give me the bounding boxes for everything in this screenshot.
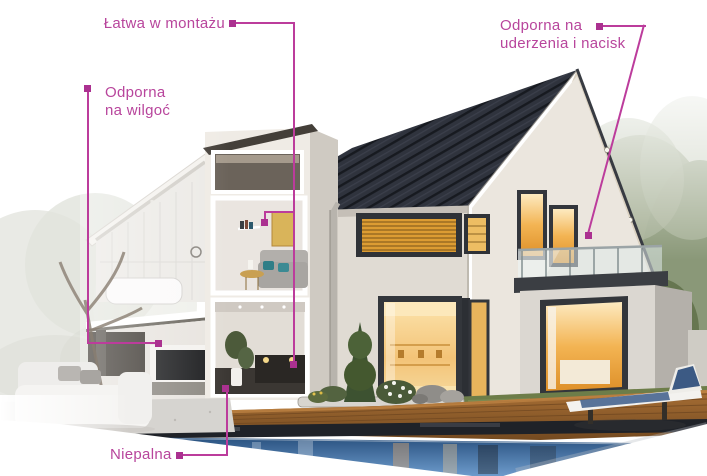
flower-bush [376, 380, 416, 404]
annotation-marker-non-flammable-end [222, 385, 229, 392]
annotation-line-moisture-v [87, 92, 89, 344]
cutaway-house [80, 120, 338, 420]
extension-window [540, 296, 628, 396]
annotation-line-non-flammable-v [226, 388, 228, 456]
annotation-marker-moisture-label [84, 85, 91, 92]
annotation-label-easy-install: Łatwa w montażu [60, 15, 225, 33]
annotation-label-impact-resistant: Odporna na uderzenia i nacisk [500, 17, 625, 54]
annotation-marker-impact-label [596, 23, 603, 30]
house-scene-illustration [0, 0, 707, 476]
annotation-line-easy-install-v [293, 22, 295, 362]
annotation-marker-easy-install-label [229, 20, 236, 27]
annotation-line-moisture-h [87, 342, 158, 344]
annotation-label-moisture-resistant: Odporna na wilgoć [105, 84, 170, 121]
painting [272, 212, 294, 246]
blinds-window [356, 213, 490, 257]
annotation-marker-easy-install-branch [261, 219, 268, 226]
sideboard [255, 355, 305, 383]
annotation-line-easy-install-branch-h [264, 211, 295, 213]
downpipe [330, 203, 338, 394]
side-table [240, 270, 264, 278]
extension [514, 271, 692, 398]
annotation-label-non-flammable: Niepalna [110, 446, 172, 464]
annotation-marker-impact-end [585, 232, 592, 239]
annotation-marker-non-flammable-label [176, 452, 183, 459]
annotation-marker-moisture-end [155, 340, 162, 347]
annotation-line-easy-install-h [236, 22, 295, 24]
annotation-marker-easy-install-end [290, 361, 297, 368]
infographic-canvas: Łatwa w montażu Odporna na wilgoć Odporn… [0, 0, 707, 476]
annotation-line-impact-h [603, 25, 646, 27]
annotation-line-non-flammable-h [183, 454, 228, 456]
